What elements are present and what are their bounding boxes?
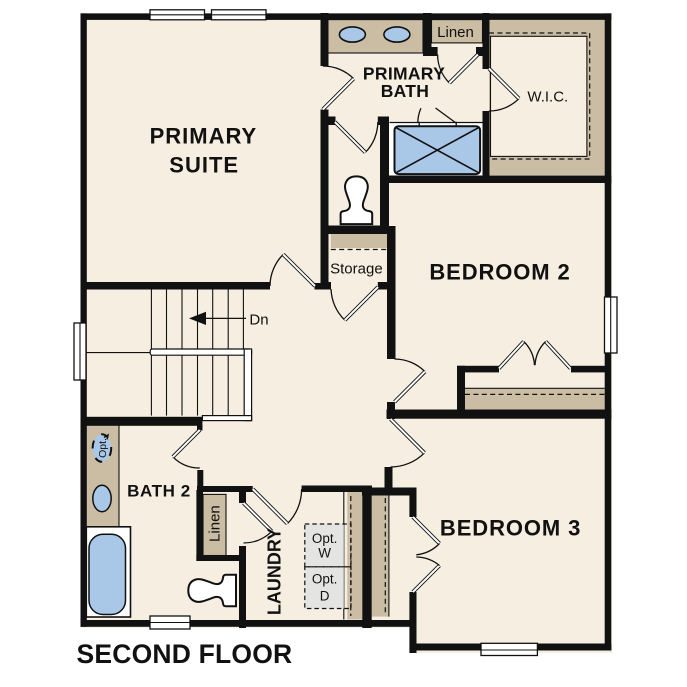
svg-text:Opt.: Opt. (97, 438, 109, 458)
svg-text:Opt.: Opt. (312, 531, 338, 546)
svg-text:BEDROOM 3: BEDROOM 3 (440, 516, 581, 541)
svg-text:Opt.: Opt. (312, 572, 338, 587)
svg-text:BEDROOM 2: BEDROOM 2 (429, 259, 570, 284)
svg-text:PRIMARY: PRIMARY (150, 123, 258, 148)
svg-text:Linen: Linen (207, 505, 224, 542)
svg-text:W: W (318, 545, 331, 560)
svg-text:BATH: BATH (381, 81, 430, 101)
svg-text:W.I.C.: W.I.C. (527, 89, 568, 106)
svg-text:Storage: Storage (330, 261, 383, 278)
svg-text:LAUNDRY: LAUNDRY (265, 528, 285, 615)
svg-text:SECOND FLOOR: SECOND FLOOR (77, 639, 293, 669)
svg-text:Linen: Linen (437, 24, 474, 41)
svg-text:Dn: Dn (249, 311, 268, 328)
svg-text:SUITE: SUITE (169, 153, 239, 178)
svg-text:D: D (320, 589, 330, 604)
svg-text:BATH 2: BATH 2 (127, 482, 191, 501)
